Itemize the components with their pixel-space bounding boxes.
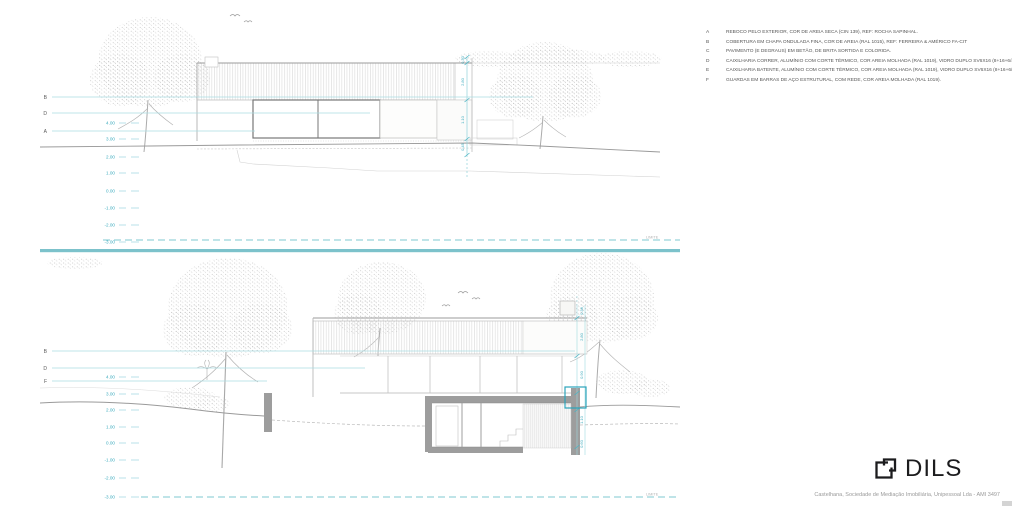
- legend-row: B COBERTURA EM CHAPA ONDULADA FINA, COR …: [706, 38, 1012, 48]
- stairs: [500, 429, 523, 447]
- corner-nub: [1002, 501, 1012, 506]
- level-label: 0.00: [106, 189, 115, 194]
- level-label: 2.00: [106, 155, 115, 160]
- legend-row: F GUARDAS EM BARRAS DE AÇO ESTRUTURAL, C…: [706, 76, 1012, 86]
- level-label: 4.00: [106, 121, 115, 126]
- ground-line-top: [40, 141, 660, 177]
- legend-key: D: [706, 57, 726, 67]
- dim-label: 1.10: [460, 115, 465, 124]
- legend-row: C PAVIMENTO (E DEGRAUS) EM BETÃO, DE BRI…: [706, 47, 1012, 57]
- legend-row: E CAIXILHARIA BATENTE, ALUMÍNIO COM CORT…: [706, 66, 1012, 76]
- level-label: 0.00: [106, 441, 115, 446]
- leader-letter: A: [44, 129, 48, 135]
- leader-lines-bottom: B D F: [43, 349, 575, 385]
- bottom-elevation: 0.38 2.80 0.90 1.10 0.60 B D F 4.00 3.0: [40, 253, 680, 500]
- roof-box: [560, 301, 575, 315]
- birds-icon: [442, 292, 480, 307]
- window-sliding: [253, 100, 380, 138]
- legend-text: PAVIMENTO (E DEGRAUS) EM BETÃO, DE BRITA…: [726, 47, 891, 57]
- leader-letter: D: [43, 111, 47, 117]
- birds-icon: [230, 15, 252, 23]
- tree-canopy-big: [47, 257, 292, 468]
- legend-text: REBOCO PELO EXTERIOR, COR DE AREIA SECA …: [726, 28, 918, 38]
- level-label: 4.00: [106, 375, 115, 380]
- level-label: 3.00: [106, 392, 115, 397]
- dils-logo-icon: [872, 456, 898, 482]
- boundary-line-top: LIMITE: [103, 236, 680, 241]
- legend-key: C: [706, 47, 726, 57]
- level-label: -2.00: [105, 223, 116, 228]
- legend-key: F: [706, 76, 726, 86]
- legend-row: A REBOCO PELO EXTERIOR, COR DE AREIA SEC…: [706, 28, 1012, 38]
- legend-text: CAIXILHARIA CORRER, ALUMÍNIO COM CORTE T…: [726, 57, 1012, 67]
- legend-text: GUARDAS EM BARRAS DE AÇO ESTRUTURAL, COM…: [726, 76, 941, 86]
- level-label: -3.00: [105, 495, 116, 500]
- dim-label: 0.60: [579, 439, 584, 448]
- top-elevation: 0.30 2.80 1.10 0.45 B D A 4.00 3.00 2.0: [40, 15, 680, 245]
- window-fixed: [380, 100, 437, 138]
- drawing-sheet: 0.30 2.80 1.10 0.45 B D A 4.00 3.00 2.0: [0, 0, 1012, 506]
- level-label: 1.00: [106, 425, 115, 430]
- small-palm: [197, 360, 217, 380]
- leader-letter: B: [44, 95, 48, 101]
- level-markers-top: 4.00 3.00 2.00 1.00 0.00 -1.00 -2.00 -3.…: [105, 121, 139, 245]
- divider-bar: [40, 249, 680, 252]
- dim-label: 2.80: [579, 332, 584, 341]
- legend-text: COBERTURA EM CHAPA ONDULADA FINA, COR DE…: [726, 38, 967, 48]
- boundary-label: LIMITE: [646, 236, 659, 240]
- level-label: -1.00: [105, 458, 116, 463]
- leader-letter: D: [43, 366, 47, 372]
- level-label: 2.00: [106, 408, 115, 413]
- dim-label: 0.45: [460, 142, 465, 151]
- boundary-label: LIMITE: [646, 493, 659, 497]
- dim-label: 0.30: [460, 55, 465, 64]
- level-label: -1.00: [105, 206, 116, 211]
- dim-label: 1.10: [579, 415, 584, 424]
- roof-greenery: [455, 49, 662, 67]
- tree-canopy-left: [90, 17, 210, 152]
- level-label: 1.00: [106, 171, 115, 176]
- level-markers-bottom: 4.00 3.00 2.00 1.00 0.00 -1.00 -2.00 -3.…: [105, 375, 139, 500]
- materials-legend: A REBOCO PELO EXTERIOR, COR DE AREIA SEC…: [706, 28, 1012, 86]
- retaining-wall: [264, 393, 272, 432]
- brand-block: DILS: [872, 455, 962, 483]
- dim-label: 2.80: [460, 77, 465, 86]
- dim-label: 0.90: [579, 370, 584, 379]
- level-label: -2.00: [105, 476, 116, 481]
- level-label: 3.00: [106, 137, 115, 142]
- legend-key: E: [706, 66, 726, 76]
- legend-row: D CAIXILHARIA CORRER, ALUMÍNIO COM CORTE…: [706, 57, 1012, 67]
- boundary-line-bottom: LIMITE: [141, 493, 680, 498]
- section-cut: [264, 388, 580, 455]
- brand-name: DILS: [905, 455, 962, 483]
- company-credit: Castelhana, Sociedade de Mediação Imobil…: [814, 492, 1000, 498]
- dim-label: 0.38: [579, 306, 584, 315]
- legend-key: B: [706, 38, 726, 48]
- legend-key: A: [706, 28, 726, 38]
- legend-text: CAIXILHARIA BATENTE, ALUMÍNIO COM CORTE …: [726, 66, 1012, 76]
- leader-letter: B: [44, 349, 48, 355]
- leader-letter: F: [44, 379, 47, 385]
